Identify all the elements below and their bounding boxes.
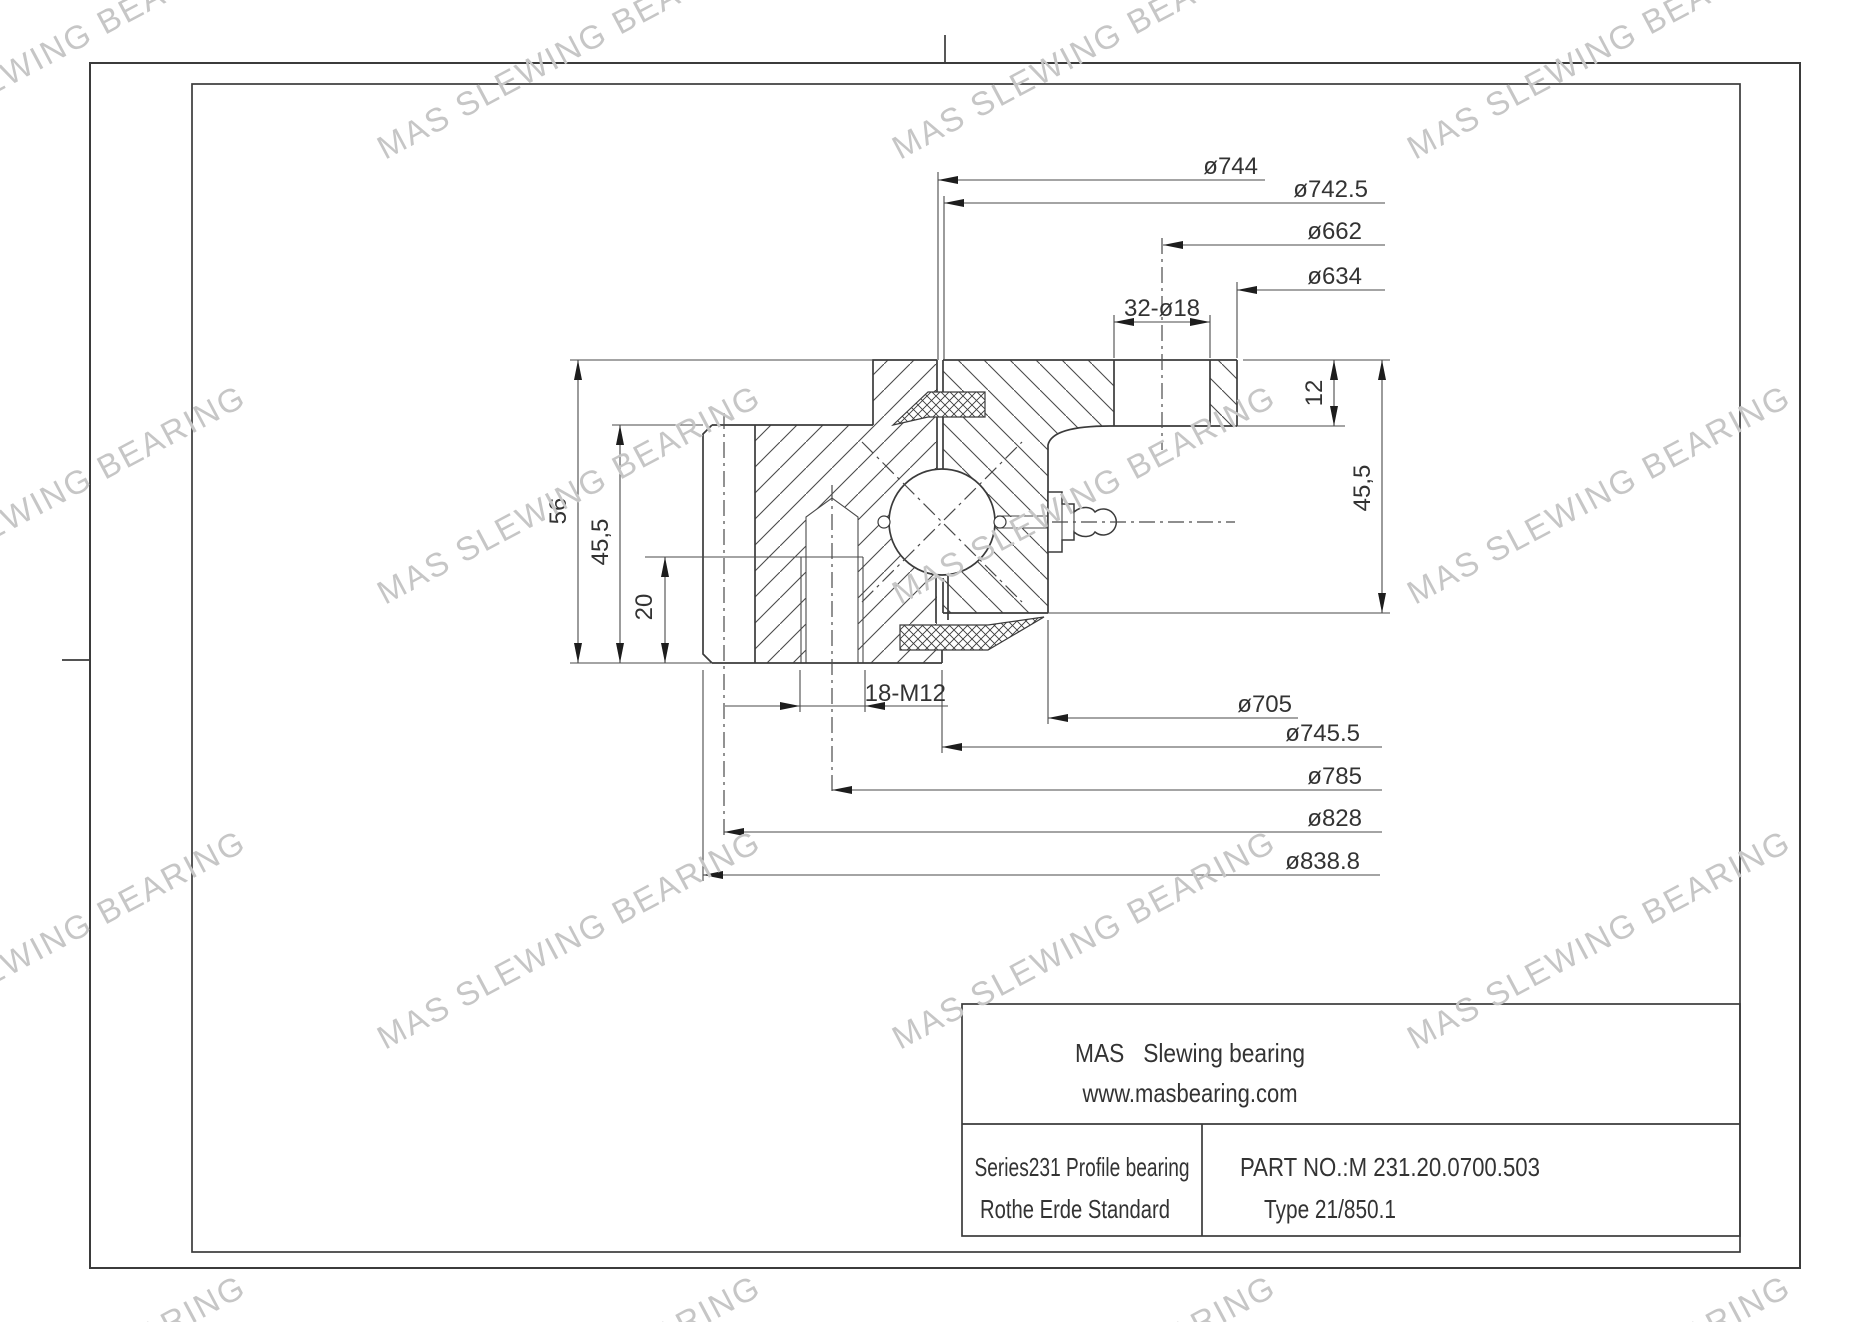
- type-designation: Type 21/850.1: [1264, 1194, 1396, 1224]
- watermark-text: MAS SLEWING BEARING: [0, 0, 252, 166]
- watermark-text: MAS SLEWING BEARING: [886, 0, 1282, 166]
- standard-line: Rothe Erde Standard: [980, 1194, 1170, 1224]
- dim-label-838-8: ø838.8: [1285, 848, 1360, 875]
- dim-label-662: ø662: [1307, 218, 1362, 245]
- inner-frame: [192, 84, 1740, 1252]
- dim-label-45-5-right: 45,5: [1349, 465, 1376, 512]
- raceway-contact-left: [878, 516, 890, 528]
- watermark-text: MAS SLEWING BEARING: [371, 1267, 767, 1322]
- dim-label-744: ø744: [1203, 153, 1258, 180]
- watermark-text: MAS SLEWING BEARING: [886, 1267, 1282, 1322]
- watermark-text: MAS SLEWING BEARING: [1401, 1267, 1797, 1322]
- dim-label-18-m12: 18-M12: [865, 680, 946, 707]
- part-number: PART NO.:M 231.20.0700.503: [1240, 1152, 1540, 1182]
- watermark-text: MAS SLEWING BEARING: [886, 822, 1282, 1056]
- dim-label-32-18: 32-ø18: [1124, 295, 1200, 322]
- dim-label-742-5: ø742.5: [1293, 176, 1368, 203]
- watermark-text: MAS SLEWING BEARING: [1401, 0, 1797, 166]
- dim-label-828: ø828: [1307, 805, 1362, 832]
- watermark-text: MAS SLEWING BEARING: [0, 1267, 252, 1322]
- title-block: MAS Slewing bearing www.masbearing.com S…: [962, 1004, 1740, 1236]
- watermark-text: MAS SLEWING BEARING: [371, 377, 767, 611]
- dim-label-634: ø634: [1307, 263, 1362, 290]
- watermark-text: MAS SLEWING BEARING: [1401, 377, 1797, 611]
- company-website: www.masbearing.com: [1082, 1078, 1298, 1108]
- dim-label-705: ø705: [1237, 691, 1292, 718]
- dim-label-20: 20: [631, 594, 658, 621]
- watermark-text: MAS SLEWING BEARING: [1401, 822, 1797, 1056]
- dim-label-45-5-left: 45,5: [587, 519, 614, 566]
- watermark-text: MAS SLEWING BEARING: [371, 822, 767, 1056]
- drawing-sheet: ø744 ø742.5 ø662 ø634 32-ø18 12 45,5 56 …: [0, 0, 1871, 1322]
- company-name: MAS Slewing bearing: [1075, 1038, 1305, 1068]
- dim-label-785: ø785: [1307, 763, 1362, 790]
- outer-border: [90, 63, 1800, 1268]
- series-line: Series231 Profile bearing: [975, 1152, 1190, 1182]
- technical-drawing: ø744 ø742.5 ø662 ø634 32-ø18 12 45,5 56 …: [0, 0, 1871, 1322]
- dim-label-12: 12: [1301, 380, 1328, 407]
- dim-label-745-5: ø745.5: [1285, 720, 1360, 747]
- watermark-text: MAS SLEWING BEARING: [0, 377, 252, 611]
- watermark-text: MAS SLEWING BEARING: [0, 822, 252, 1056]
- watermark-text: MAS SLEWING BEARING: [371, 0, 767, 166]
